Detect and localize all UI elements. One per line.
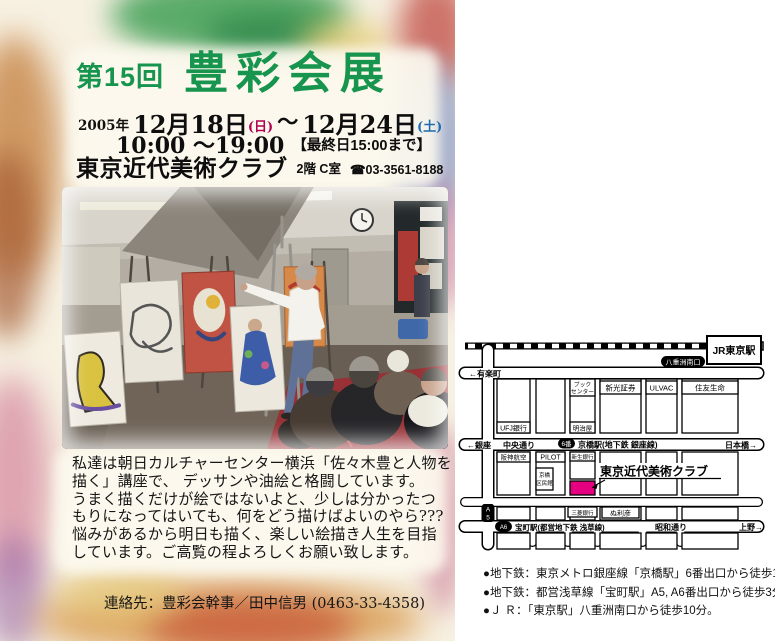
a5-label-2: 5 xyxy=(486,515,490,522)
a6-label: A6 xyxy=(500,525,508,531)
street-chuo-dori-label: 中央通り xyxy=(503,440,535,450)
street-nihonbashi-label: 日本橋→ xyxy=(725,440,757,450)
description-line: 私達は朝日カルチャーセンター横浜「佐々木豊と人物を xyxy=(72,455,450,473)
venue-floor: 2階 C室 xyxy=(297,158,341,180)
sumitomo-life-label: 住友生命 xyxy=(695,383,725,393)
description-line: うまく描くだけが絵ではないよと、少しは分かったつ xyxy=(72,491,450,509)
clock-icon xyxy=(351,209,373,231)
bank-a-label: 新生銀行 xyxy=(571,453,594,461)
nurihiko-label: ぬ利彦 xyxy=(610,509,631,518)
yaesu-exit-label: 八重洲南口 xyxy=(666,358,701,367)
street-ginza-label: ←銀座 xyxy=(467,440,491,450)
meijiya-label: 明治屋 xyxy=(573,424,593,433)
venue-name: 東京近代美術クラブ xyxy=(76,157,288,180)
location-map: JR東京駅 八重洲南口 ←有楽町 ←銀座 中央通り 6番 京橋駅(地下鉄 銀座線… xyxy=(455,330,775,558)
a5-exit-badge: A 5 xyxy=(482,504,494,522)
kumin-hall-label-2: 区民館 xyxy=(536,479,553,487)
venue-row: 東京近代美術クラブ 2階 C室 ☎03-3561-8188 xyxy=(76,157,443,180)
exit6-label: 6番 xyxy=(561,440,572,448)
exhibition-edition: 第15回 xyxy=(76,64,164,96)
bank-b-label: 三菱銀行 xyxy=(571,509,594,517)
venue-building-highlight xyxy=(570,481,595,495)
description-line: しています。ご高覧の程よろしくお願い致します。 xyxy=(72,544,450,562)
access-line-subway-asakusa: ●地下鉄：都営浅草線「宝町駅」A5, A6番出口から徒歩3分。 xyxy=(483,584,775,603)
contact-line: 連絡先：豊彩会幹事／田中信男 (0463-33-4358) xyxy=(104,592,425,613)
ufj-bank-label: UFJ銀行 xyxy=(500,424,527,433)
street-showa-dori-label: 昭和通り xyxy=(655,522,687,532)
venue-phone: ☎03-3561-8188 xyxy=(350,162,443,180)
exhibition-title: 豊彩会展 xyxy=(184,52,392,96)
hanshin-label: 阪神航空 xyxy=(501,453,528,462)
description-line: 悩みがあるから明日も描く、楽しい絵描き人生を目指 xyxy=(72,526,450,544)
title-row: 第15回 豊彩会展 xyxy=(76,52,392,96)
open-hours: 10:00 ～19:00 xyxy=(116,135,284,157)
exhibition-flyer: 第15回 豊彩会展 2005年 12月18日 (日) ～ 12月24日 (土) … xyxy=(0,0,455,641)
takaracho-station-label: 宝町駅(都営地下鉄 浅草線) xyxy=(515,522,605,532)
map-illustration: JR東京駅 八重洲南口 ←有楽町 ←銀座 中央通り 6番 京橋駅(地下鉄 銀座線… xyxy=(455,330,775,558)
book-center-label-2: センター xyxy=(571,388,594,396)
description-paragraph: 私達は朝日カルチャーセンター横浜「佐々木豊と人物を 描く」講座で、 デッサンや油… xyxy=(72,455,450,562)
open-hours-note: 【最終日15:00まで】 xyxy=(292,134,431,157)
street-yurakucho-label: ←有楽町 xyxy=(469,369,501,379)
kyobashi-station-label: 京橋駅(地下鉄 銀座線) xyxy=(578,440,658,450)
a6-exit-badge: A6 xyxy=(495,522,512,532)
jr-station-label: JR東京駅 xyxy=(713,344,757,357)
exit6-badge: 6番 xyxy=(558,439,575,449)
venue-map-label-text: 東京近代美術クラブ xyxy=(600,464,708,479)
hours-row: 10:00 ～19:00 【最終日15:00まで】 xyxy=(116,134,431,157)
yaesu-exit-badge: 八重洲南口 xyxy=(661,356,705,367)
ulvac-label: ULVAC xyxy=(650,384,674,393)
shinko-securities-label: 新光証券 xyxy=(606,383,636,393)
pilot-label: PILOT xyxy=(540,455,561,462)
access-line-jr: ●Ｊ Ｒ：「東京駅」八重洲南口から徒歩10分。 xyxy=(483,602,775,621)
exhibition-photo xyxy=(62,187,448,449)
photo-illustration xyxy=(62,187,448,449)
book-center-label-1: ブック xyxy=(574,381,592,389)
a5-label-1: A xyxy=(486,507,491,514)
access-line-subway-ginza: ●地下鉄：東京メトロ銀座線「京橋駅」6番出口から徒歩1分。 xyxy=(483,565,775,584)
jr-tokyo-station-box: JR東京駅 xyxy=(707,336,761,364)
description-line: もりになってはいても、何をどう描けばよいのやら??? xyxy=(72,508,450,526)
kumin-hall-label-1: 京橋 xyxy=(539,471,551,479)
access-notes: ●地下鉄：東京メトロ銀座線「京橋駅」6番出口から徒歩1分。 ●地下鉄：都営浅草線… xyxy=(483,565,775,621)
street-ueno-label: 上野→ xyxy=(739,522,763,532)
description-line: 描く」講座で、 デッサンや油絵と格闘しています。 xyxy=(72,473,450,491)
